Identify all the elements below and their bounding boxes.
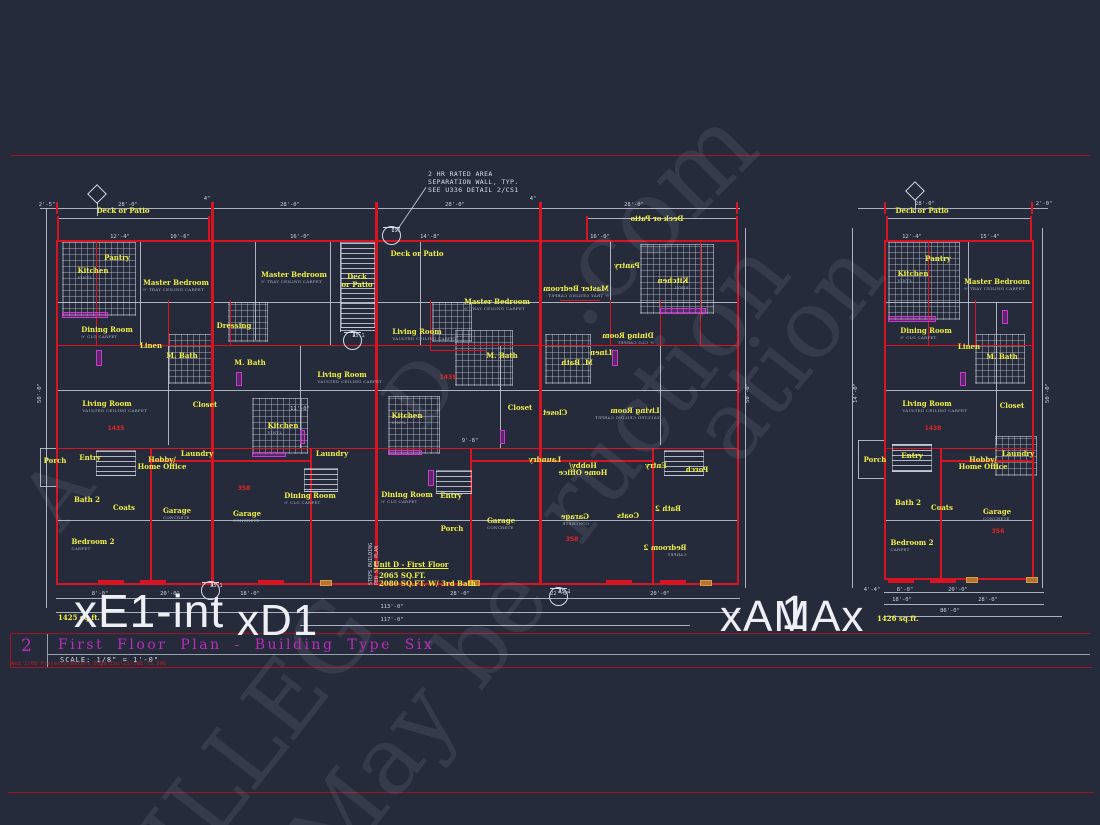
partition-line [858,440,884,441]
stair-hatch [304,468,338,492]
dimension-text: 20'-0" [650,591,670,597]
room-label: M. Bath [986,352,1017,361]
dimension-text: 28'-0" [445,202,465,208]
partition-line [540,390,737,391]
dimension-text: 50'-0" [37,383,43,403]
wall-segment [940,448,942,580]
wall-segment [539,202,542,585]
room-sub-caption: CONCRETE [562,521,589,526]
wall-segment [56,448,739,449]
partition-line [330,240,331,345]
room-sub-caption: CARPET [71,546,90,551]
cabinet-fixture [300,430,305,444]
room-label: Dining Room9' CLG CARPET [900,326,951,335]
room-sub-caption: 9' CLG CARPET [284,500,320,505]
area-number-text: 1435 [108,425,125,432]
room-label: Linen [140,341,162,350]
wall-segment [884,240,1034,242]
dimension-text: 28'-0" [978,597,998,603]
partition-line [884,520,1032,521]
room-label: Porch [441,524,464,533]
room-label: Master Bedroom9' TRAY CEILING CARPET [543,284,609,293]
garage-door-mark [966,577,978,583]
partition-line [58,218,210,219]
room-sub-caption: CONCRETE [163,515,190,520]
dimension-text: 28'-0" [450,591,470,597]
partition-line [884,604,1044,605]
page-rule-line [10,667,1092,668]
room-label: KitchenVINYL [392,411,423,420]
partition-line [884,390,1032,391]
wall-segment [886,216,888,240]
partition-line [56,390,211,391]
room-label: Entry [901,451,922,460]
room-label: Coats [931,503,953,512]
dimension-text: 9'-8" [462,438,479,444]
room-label: Living RoomVAULTED CEILING CARPET [902,399,951,408]
room-sub-caption: 9' TRAY CEILING CARPET [964,286,1025,291]
wall-segment [736,216,738,240]
room-sub-caption: 9' TRAY CEILING CARPET [548,293,609,298]
wall-segment [586,216,588,240]
wall-segment [56,240,58,585]
partition-line [968,240,969,345]
partition-line [140,240,141,345]
separation-wall-note: 2 HR RATED AREASEPARATION WALL, TYP.SEE … [428,170,519,194]
wall-segment [430,350,486,351]
room-sub-caption: CONCRETE [487,525,514,530]
area-number-text: 358 [238,485,251,492]
room-sub-caption: VINYL [674,285,689,290]
room-label: Pantry [925,254,951,263]
page-rule-line [10,155,1090,156]
wall-segment [700,240,701,346]
dimension-text: 11'-0" [290,406,310,412]
dimension-text: 18'-0" [892,597,912,603]
room-label: Home Office [959,462,1008,471]
cabinet-fixture [96,350,102,366]
partition-line [745,228,746,588]
room-sub-caption: 9' CLG CARPET [617,340,653,345]
wall-segment [258,580,284,585]
cabinet-fixture [612,350,618,366]
room-label: Master Bedroom9' TRAY CEILING CARPET [143,278,209,287]
wall-segment [560,300,600,301]
wall-segment [212,460,310,462]
area-number-text: 358 [566,536,579,543]
room-label: Linen [590,348,612,357]
note-leader-line [396,187,426,231]
room-label: Living RoomVAULTED CEILING CARPET [610,406,659,415]
marker-text: A5.1 [353,332,365,341]
room-label: Closet [508,403,533,412]
wall-segment [975,300,976,346]
marker-stem [915,199,916,213]
partition-line [852,228,853,588]
cabinet-fixture [660,308,706,314]
tile-grid-area [388,396,440,454]
overlay-label-text: 1 [781,586,809,641]
dimension-text: 2'-0" [1036,201,1053,207]
room-label: Closet [1000,401,1025,410]
partition-line [858,440,859,478]
garage-door-mark [320,580,332,586]
room-label: Laundry [181,449,213,458]
room-label: Living RoomVAULTED CEILING CARPET [82,399,131,408]
room-label: Linen [958,342,980,351]
dimension-text: 14'-8" [420,234,440,240]
room-label: Master Bedroom9' TRAY CEILING CARPET [464,297,530,306]
room-label: Closet [543,408,568,417]
sheet-title: First Floor Plan - Building Type Six [58,637,434,653]
room-label: GarageCONCRETE [163,506,191,515]
dimension-text: 50'-0" [1045,383,1051,403]
room-sub-caption: VAULTED CEILING CARPET [595,415,660,420]
garage-door-mark [700,580,712,586]
room-sub-caption: 9' TRAY CEILING CARPET [143,287,204,292]
room-label: Dining Room9' CLG CARPET [81,325,132,334]
room-label: Laundry [316,449,348,458]
room-label: Dressing [217,321,252,330]
note-line: SEE U336 DETAIL 2/CS1 [428,186,519,194]
dimension-text: 4" [204,196,211,202]
partition-line [1042,228,1043,588]
room-label: Porch [864,455,887,464]
cabinet-fixture [500,430,505,444]
room-sub-caption: VAULTED CEILING CARPET [82,408,147,413]
wall-segment [208,216,210,240]
wall-segment [230,345,270,346]
dimension-text: 50'-0" [745,383,751,403]
room-sub-caption: 9' CLG CARPET [81,334,117,339]
room-label: or Patio [342,280,373,289]
room-label: GarageCONCRETE [983,507,1011,516]
room-label: Deck or Patio [630,214,683,223]
dimension-text: 8'-0" [897,587,914,593]
cabinet-fixture [388,450,422,455]
room-sub-caption: 9' CLG CARPET [900,335,936,340]
partition-line [858,478,884,479]
partition-line [886,218,1032,219]
wall-segment [975,345,1015,346]
room-label: Bath 2 [895,498,921,507]
wall-segment [470,448,472,583]
room-sub-caption: VINYL [268,430,283,435]
room-label: KitchenVINYL [898,269,929,278]
partition-line [212,390,375,391]
room-sub-caption: 9' TRAY CEILING CARPET [464,306,525,311]
area-number-text: 1435 [440,374,457,381]
file-path-text: Wed 2/08 Projects\Waters_Edge\Eds\CS\xWE… [11,661,167,667]
room-label: M. Bath [486,351,517,360]
room-label: Coats [113,503,135,512]
room-label: Pantry [614,261,640,270]
room-sub-caption: VAULTED CEILING CARPET [317,379,382,384]
room-label: Dining Room9' CLG CARPET [602,331,653,340]
room-sub-caption: VINYL [898,278,913,283]
room-label: M. Bath [561,358,592,367]
room-label: 1426 sq.ft. [877,614,919,623]
room-label: Porch [686,465,709,474]
cabinet-fixture [888,316,936,322]
room-label: Entry [645,461,666,470]
partition-line [56,520,211,521]
garage-door-mark [1026,577,1038,583]
note-line: 2 HR RATED AREA [428,170,519,178]
room-label: Dining Room9' CLG CARPET [381,490,432,499]
dimension-text: 10'-6" [170,234,190,240]
cabinet-fixture [236,372,242,386]
dimension-text: 20'-0" [948,587,968,593]
room-sub-caption: CONCRETE [233,518,260,523]
room-label: Deck or Patio [390,249,443,258]
room-label: KitchenVINYL [78,266,109,275]
room-label: KitchenVINYL [658,276,689,285]
room-label: Bedroom 2CARPET [643,543,686,552]
note-line: SEPARATION WALL, TYP. [428,178,519,186]
stair-hatch [96,450,136,476]
room-sub-caption: VAULTED CEILING CARPET [902,408,967,413]
wall-segment [56,202,58,214]
partition-line [858,208,1048,209]
dimension-text: 16'-0" [290,234,310,240]
room-label: Dining Room9' CLG CARPET [284,491,335,500]
room-label: Master Bedroom9' TRAY CEILING CARPET [261,270,327,279]
room-label: 2080 SQ.FT. W/ 3rd Bath [379,579,476,588]
partition-line [300,625,690,626]
room-label: Entry [79,453,100,462]
marker-text: A5.1 [559,588,571,597]
room-sub-caption: VAULTED CEILING CARPET [392,336,457,341]
area-number-text: 1438 [925,425,942,432]
room-label: Deck or Patio [96,206,149,215]
elevation-diamond-marker [87,184,107,204]
partition-line [46,208,47,608]
room-label: Closet [193,400,218,409]
wall-segment [736,202,738,214]
room-label: M. Bath [166,351,197,360]
wall-segment [430,300,431,350]
room-label: Laundry [1002,449,1034,458]
dimension-text: 28'-0" [624,202,644,208]
room-label: GarageCONCRETE [233,509,261,518]
wall-segment [1030,216,1032,240]
cabinet-fixture [960,372,966,386]
room-sub-caption: CARPET [890,547,909,552]
room-sub-caption: CONCRETE [983,516,1010,521]
room-label: Bedroom 2CARPET [71,537,114,546]
dimension-text: 117'-0" [380,617,403,623]
room-label: GarageCONCRETE [487,516,515,525]
dimension-text: 2'-5" [39,202,56,208]
room-label: Pantry [104,253,130,262]
wall-segment [660,580,686,585]
wall-segment [1032,240,1034,580]
room-sub-caption: CARPET [667,552,686,557]
dimension-text: 28'-0" [280,202,300,208]
room-label: GarageCONCRETE [561,512,589,521]
dimension-text: 16'-0" [590,234,610,240]
drawing-layer: 2'-5"28'-0"4"28'-0"28'-0"4"28'-0"113'-0"… [0,0,1100,825]
dimension-text: 15'-4" [980,234,1000,240]
dimension-text: 12'-4" [902,234,922,240]
area-number-text: 356 [992,528,1005,535]
overlay-label-text: xE1-int [74,584,224,638]
wall-segment [660,300,661,345]
wall-segment [884,240,886,580]
room-label: M. Bath [234,358,265,367]
marker-stem [97,202,98,216]
dimension-text: 113'-0" [380,604,403,610]
wall-segment [737,240,739,585]
dimension-text: 4'-4" [864,587,881,593]
dimension-text: 4" [530,196,537,202]
room-label: Entry [440,491,461,500]
page-rule-line [8,792,1094,793]
room-label: Porch [44,456,67,465]
wall-segment [884,202,886,214]
cabinet-fixture [252,452,286,457]
room-label: Home Office [559,468,608,477]
cad-application-canvas: 2'-5"28'-0"4"28'-0"28'-0"4"28'-0"113'-0"… [0,0,1100,825]
room-label: Bath 2 [655,504,681,513]
room-label: Bath 2 [74,495,100,504]
wall-segment [375,202,378,585]
dimension-text: 86'-0" [940,608,960,614]
wall-segment [57,216,59,240]
sheet-number: 2 [21,636,32,656]
partition-line [40,448,41,486]
wall-segment [884,578,1034,580]
watermark-text: May be [265,547,570,825]
room-sub-caption: VINYL [78,275,93,280]
cabinet-fixture [1002,310,1008,324]
room-label: KitchenVINYL [268,421,299,430]
titleblock-line [47,654,1090,655]
elevation-diamond-marker [905,181,925,201]
section-circle-marker: 3A5.1 [549,587,568,606]
room-label: Deck or Patio [895,206,948,215]
room-label: Home Office [138,462,187,471]
room-label: Living RoomVAULTED CEILING CARPET [392,327,441,336]
dimension-text: 14'-0" [853,383,859,403]
room-sub-caption: VINYL [392,420,407,425]
wall-segment [168,300,169,345]
room-label: Bedroom 2CARPET [890,538,933,547]
room-label: Living RoomVAULTED CEILING CARPET [317,370,366,379]
room-label: Unit D - First Floor [374,560,449,569]
room-sub-caption: 9' CLG CARPET [381,499,417,504]
cabinet-fixture [428,470,434,486]
wall-segment [211,202,214,585]
room-label: Laundry [529,455,561,464]
wall-segment [1031,202,1033,214]
dimension-text: 12'-4" [110,234,130,240]
room-label: Master Bedroom9' TRAY CEILING CARPET [964,277,1030,286]
room-label: Coats [617,511,639,520]
section-circle-marker: 2A5.1 [343,331,362,350]
partition-line [376,390,539,391]
wall-segment [606,580,632,585]
cabinet-fixture [62,312,108,318]
partition-line [340,330,376,331]
room-sub-caption: 9' TRAY CEILING CARPET [261,279,322,284]
